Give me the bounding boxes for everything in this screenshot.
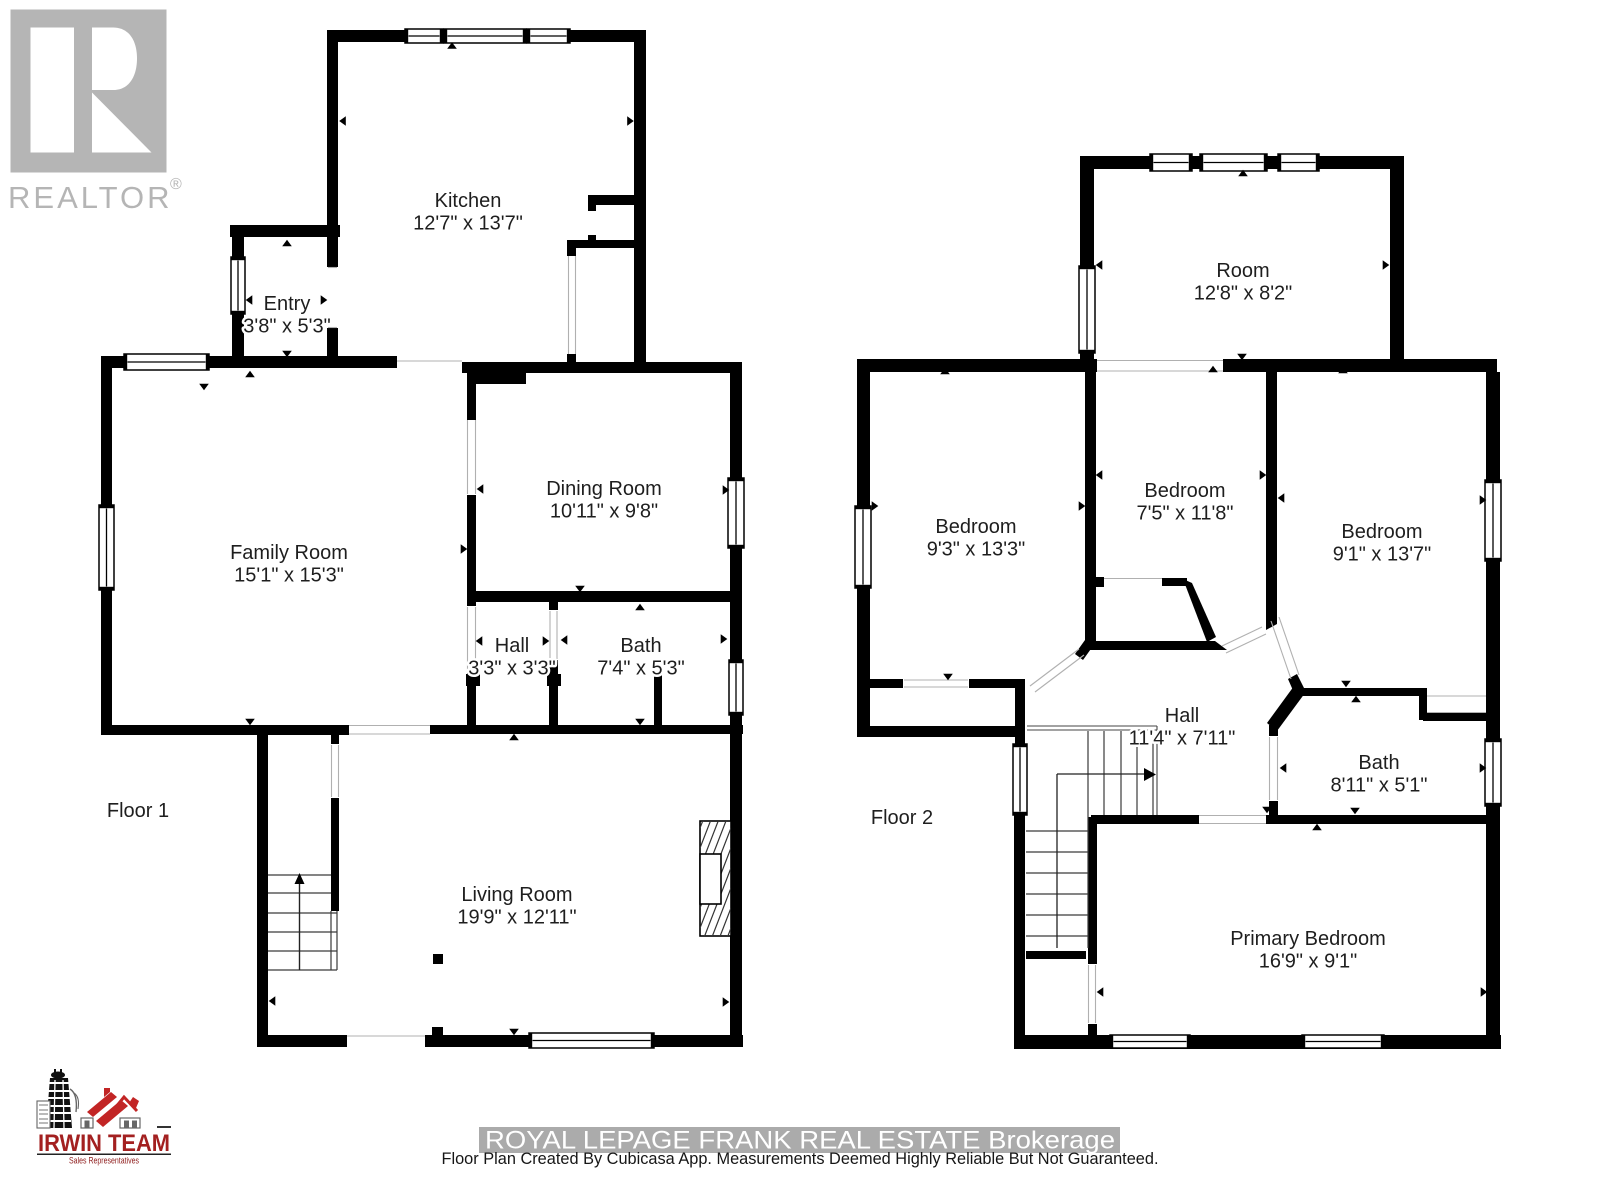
svg-text:19'9" x 12'11": 19'9" x 12'11" bbox=[457, 907, 576, 929]
svg-text:Entry: Entry bbox=[264, 293, 311, 315]
svg-text:3'3" x 3'3": 3'3" x 3'3" bbox=[468, 658, 555, 680]
svg-text:12'8" x 8'2": 12'8" x 8'2" bbox=[1194, 283, 1293, 305]
svg-text:Bedroom: Bedroom bbox=[1341, 521, 1422, 543]
svg-text:®: ® bbox=[170, 176, 182, 193]
svg-text:7'4" x 5'3": 7'4" x 5'3" bbox=[597, 658, 684, 680]
svg-text:Sales Representatives: Sales Representatives bbox=[69, 1156, 139, 1167]
svg-text:Hall: Hall bbox=[495, 635, 529, 657]
svg-text:Floor 2: Floor 2 bbox=[871, 807, 933, 829]
svg-text:Living Room: Living Room bbox=[461, 884, 572, 906]
svg-text:8'11" x 5'1": 8'11" x 5'1" bbox=[1330, 775, 1427, 797]
svg-text:11'4" x 7'11": 11'4" x 7'11" bbox=[1129, 728, 1236, 750]
svg-text:REALTOR: REALTOR bbox=[8, 180, 173, 215]
svg-text:Bath: Bath bbox=[1358, 752, 1399, 774]
svg-text:3'8" x 5'3": 3'8" x 5'3" bbox=[243, 316, 330, 338]
svg-text:12'7" x 13'7": 12'7" x 13'7" bbox=[413, 213, 523, 235]
svg-text:10'11" x 9'8": 10'11" x 9'8" bbox=[550, 501, 658, 523]
svg-text:Bedroom: Bedroom bbox=[935, 516, 1016, 538]
svg-text:Family Room: Family Room bbox=[230, 542, 348, 564]
svg-text:Floor 1: Floor 1 bbox=[107, 800, 169, 822]
svg-text:9'1" x 13'7": 9'1" x 13'7" bbox=[1333, 544, 1432, 566]
svg-text:Bath: Bath bbox=[620, 635, 661, 657]
svg-text:Bedroom: Bedroom bbox=[1144, 480, 1225, 502]
svg-text:Floor Plan Created By Cubicasa: Floor Plan Created By Cubicasa App. Meas… bbox=[442, 1149, 1159, 1168]
svg-text:Hall: Hall bbox=[1165, 705, 1199, 727]
svg-text:15'1" x 15'3": 15'1" x 15'3" bbox=[234, 565, 344, 587]
svg-text:Kitchen: Kitchen bbox=[435, 190, 502, 212]
svg-text:Dining Room: Dining Room bbox=[546, 478, 662, 500]
svg-text:7'5" x 11'8": 7'5" x 11'8" bbox=[1136, 503, 1233, 525]
svg-text:16'9" x 9'1": 16'9" x 9'1" bbox=[1259, 951, 1358, 973]
svg-text:Primary Bedroom: Primary Bedroom bbox=[1230, 928, 1386, 950]
svg-text:9'3" x 13'3": 9'3" x 13'3" bbox=[927, 539, 1026, 561]
svg-text:IRWIN TEAM: IRWIN TEAM bbox=[38, 1130, 170, 1157]
svg-text:Room: Room bbox=[1216, 260, 1269, 282]
